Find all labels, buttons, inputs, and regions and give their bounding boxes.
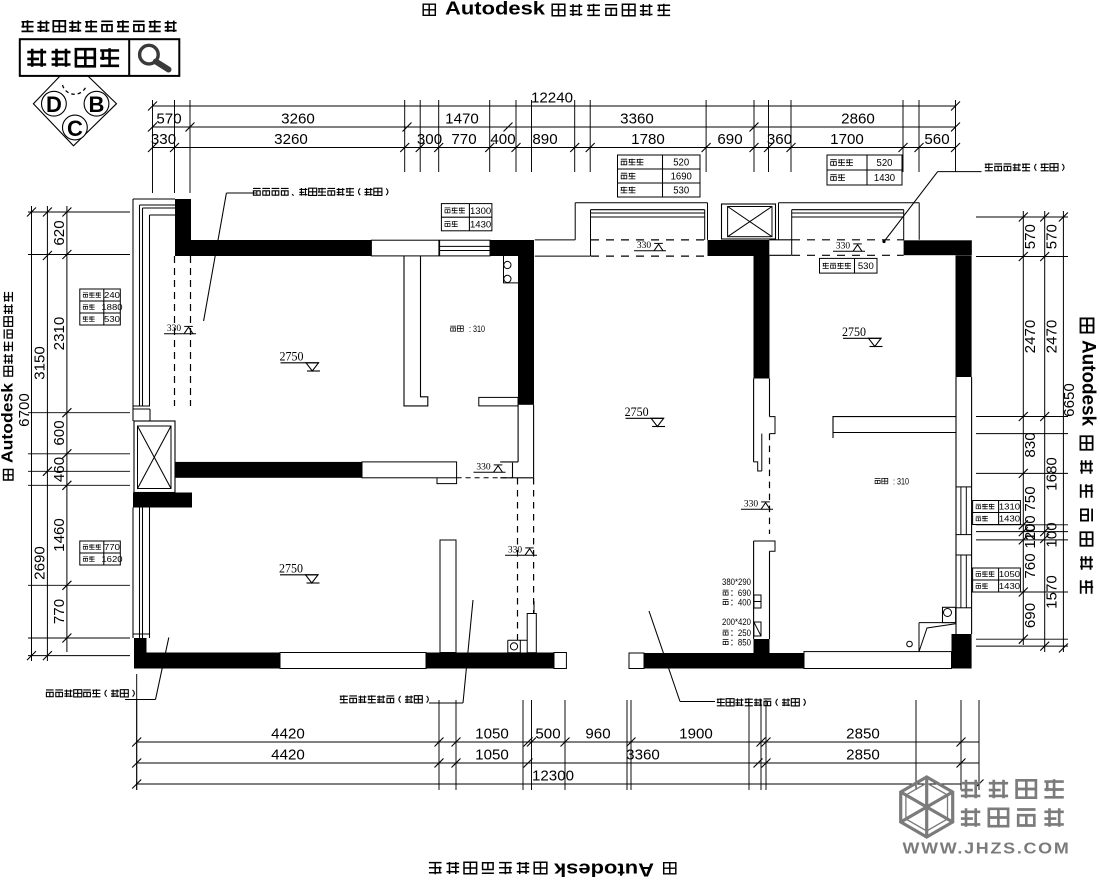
svg-text:2750: 2750 — [625, 405, 649, 419]
svg-text:570: 570 — [1044, 224, 1061, 249]
svg-text:：400: ：400 — [730, 598, 751, 608]
svg-text:770: 770 — [451, 131, 476, 148]
svg-text:330: 330 — [476, 463, 491, 473]
svg-text:460: 460 — [51, 457, 68, 482]
svg-text:3360: 3360 — [620, 111, 654, 128]
svg-text:890: 890 — [532, 131, 557, 148]
svg-text:：250: ：250 — [730, 628, 751, 638]
svg-text:3260: 3260 — [274, 131, 308, 148]
svg-text:400: 400 — [490, 131, 515, 148]
svg-text:100: 100 — [1044, 522, 1061, 547]
svg-text:1430: 1430 — [999, 514, 1020, 524]
svg-text:2310: 2310 — [51, 317, 68, 351]
svg-text:1680: 1680 — [1044, 457, 1061, 491]
svg-text:2850: 2850 — [846, 726, 880, 743]
svg-text:530: 530 — [104, 314, 120, 324]
svg-text:1430: 1430 — [470, 219, 491, 230]
svg-text:1470: 1470 — [445, 111, 479, 128]
svg-text:330: 330 — [637, 241, 652, 251]
svg-text:6700: 6700 — [16, 393, 33, 427]
svg-text:D: D — [46, 92, 62, 117]
svg-text:560: 560 — [924, 131, 949, 148]
svg-text:830: 830 — [1022, 432, 1039, 457]
svg-text:：690: ：690 — [730, 588, 751, 598]
svg-text:1460: 1460 — [51, 518, 68, 552]
svg-text:1700: 1700 — [830, 131, 864, 148]
svg-text:：850: ：850 — [730, 638, 751, 648]
svg-text:570: 570 — [1022, 224, 1039, 249]
svg-text:4420: 4420 — [271, 747, 305, 764]
svg-text:1780: 1780 — [631, 131, 665, 148]
svg-text:2750: 2750 — [279, 562, 303, 576]
svg-text:2750: 2750 — [842, 325, 866, 339]
svg-text:760: 760 — [1022, 553, 1039, 578]
svg-text:600: 600 — [51, 420, 68, 445]
svg-text:1050: 1050 — [475, 726, 509, 743]
svg-text:1900: 1900 — [679, 726, 713, 743]
svg-text:770: 770 — [51, 599, 68, 624]
svg-text:1050: 1050 — [999, 569, 1020, 579]
svg-text:530: 530 — [858, 261, 874, 272]
svg-text:530: 530 — [673, 186, 689, 197]
svg-text:200*420: 200*420 — [722, 617, 751, 627]
svg-text:330: 330 — [744, 500, 759, 510]
svg-text:570: 570 — [156, 111, 181, 128]
svg-text:3150: 3150 — [32, 346, 49, 380]
svg-text:960: 960 — [585, 726, 610, 743]
svg-text:1620: 1620 — [101, 554, 122, 564]
svg-text:330: 330 — [836, 242, 851, 252]
svg-text:750: 750 — [1022, 486, 1039, 511]
svg-text:: 310: : 310 — [469, 324, 485, 334]
svg-text:12300: 12300 — [532, 768, 574, 785]
svg-text:B: B — [89, 92, 105, 117]
svg-text:330: 330 — [508, 546, 523, 556]
svg-text:: 310: : 310 — [893, 477, 909, 487]
svg-text:520: 520 — [877, 158, 893, 169]
svg-text:380*290: 380*290 — [722, 577, 751, 587]
svg-text:1880: 1880 — [101, 302, 122, 312]
svg-text:Autodesk: Autodesk — [0, 383, 17, 463]
svg-text:1430: 1430 — [999, 581, 1020, 591]
svg-text:770: 770 — [104, 542, 120, 552]
svg-text:12240: 12240 — [531, 90, 573, 107]
svg-text:1050: 1050 — [475, 747, 509, 764]
svg-text:1430: 1430 — [874, 173, 896, 184]
svg-text:Autodesk: Autodesk — [553, 860, 654, 880]
svg-text:2470: 2470 — [1022, 320, 1039, 354]
svg-text:C: C — [67, 116, 83, 141]
svg-text:6650: 6650 — [1061, 383, 1078, 417]
svg-text:WWW.JHZS.COM: WWW.JHZS.COM — [903, 841, 1071, 858]
svg-text:690: 690 — [717, 131, 742, 148]
svg-text:1300: 1300 — [470, 206, 491, 217]
svg-text:2850: 2850 — [846, 747, 880, 764]
svg-text:2690: 2690 — [32, 546, 49, 580]
svg-text:240: 240 — [104, 290, 120, 300]
svg-text:1310: 1310 — [999, 502, 1020, 512]
svg-text:4420: 4420 — [271, 726, 305, 743]
svg-text:500: 500 — [535, 726, 560, 743]
svg-text:Autodesk: Autodesk — [445, 0, 546, 19]
svg-text:120: 120 — [1022, 523, 1039, 548]
svg-text:520: 520 — [673, 158, 689, 169]
svg-text:2750: 2750 — [280, 350, 304, 364]
svg-text:2860: 2860 — [841, 111, 875, 128]
svg-text:690: 690 — [1022, 603, 1039, 628]
svg-text:3260: 3260 — [281, 111, 315, 128]
svg-text:Autodesk: Autodesk — [1078, 340, 1099, 426]
svg-text:2470: 2470 — [1044, 320, 1061, 354]
svg-text:330: 330 — [167, 324, 182, 334]
svg-text:620: 620 — [51, 220, 68, 245]
svg-text:1690: 1690 — [671, 172, 693, 183]
